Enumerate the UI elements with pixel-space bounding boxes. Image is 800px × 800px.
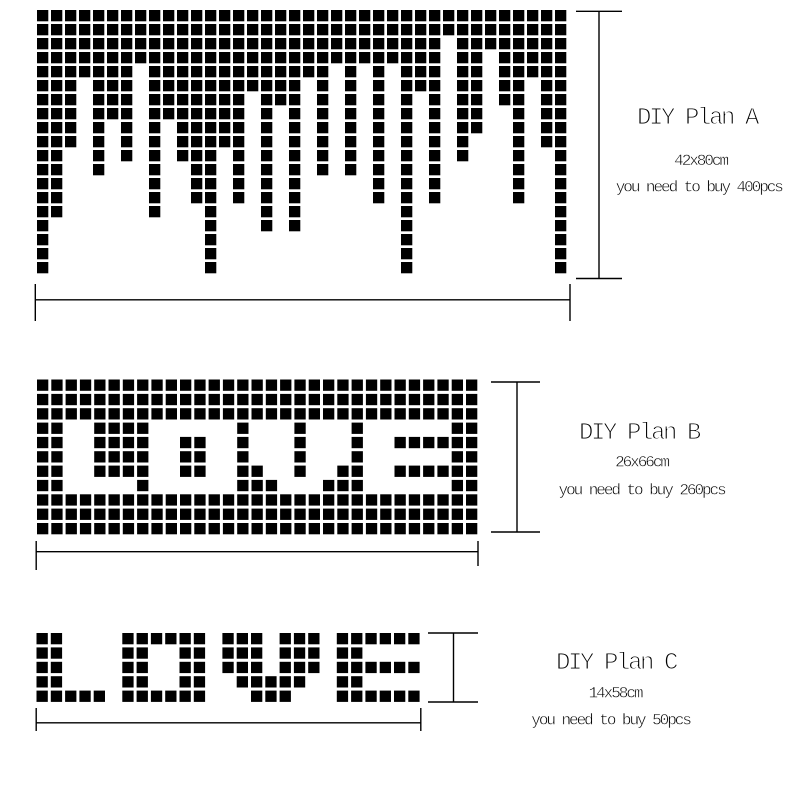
svg-text:DIY Plan C: DIY Plan C — [556, 650, 678, 677]
svg-text:DIY Plan B: DIY Plan B — [579, 420, 701, 447]
svg-text:you need to buy 400pcs: you need to buy 400pcs — [616, 179, 784, 197]
svg-text:42x80cm: 42x80cm — [674, 152, 728, 170]
svg-text:26x66cm: 26x66cm — [615, 454, 669, 472]
svg-text:14x58cm: 14x58cm — [589, 685, 643, 703]
svg-text:DIY Plan A: DIY Plan A — [637, 105, 760, 132]
svg-text:you need to buy 260pcs: you need to buy 260pcs — [559, 482, 727, 500]
svg-text:you need to buy 50pcs: you need to buy 50pcs — [531, 712, 691, 730]
